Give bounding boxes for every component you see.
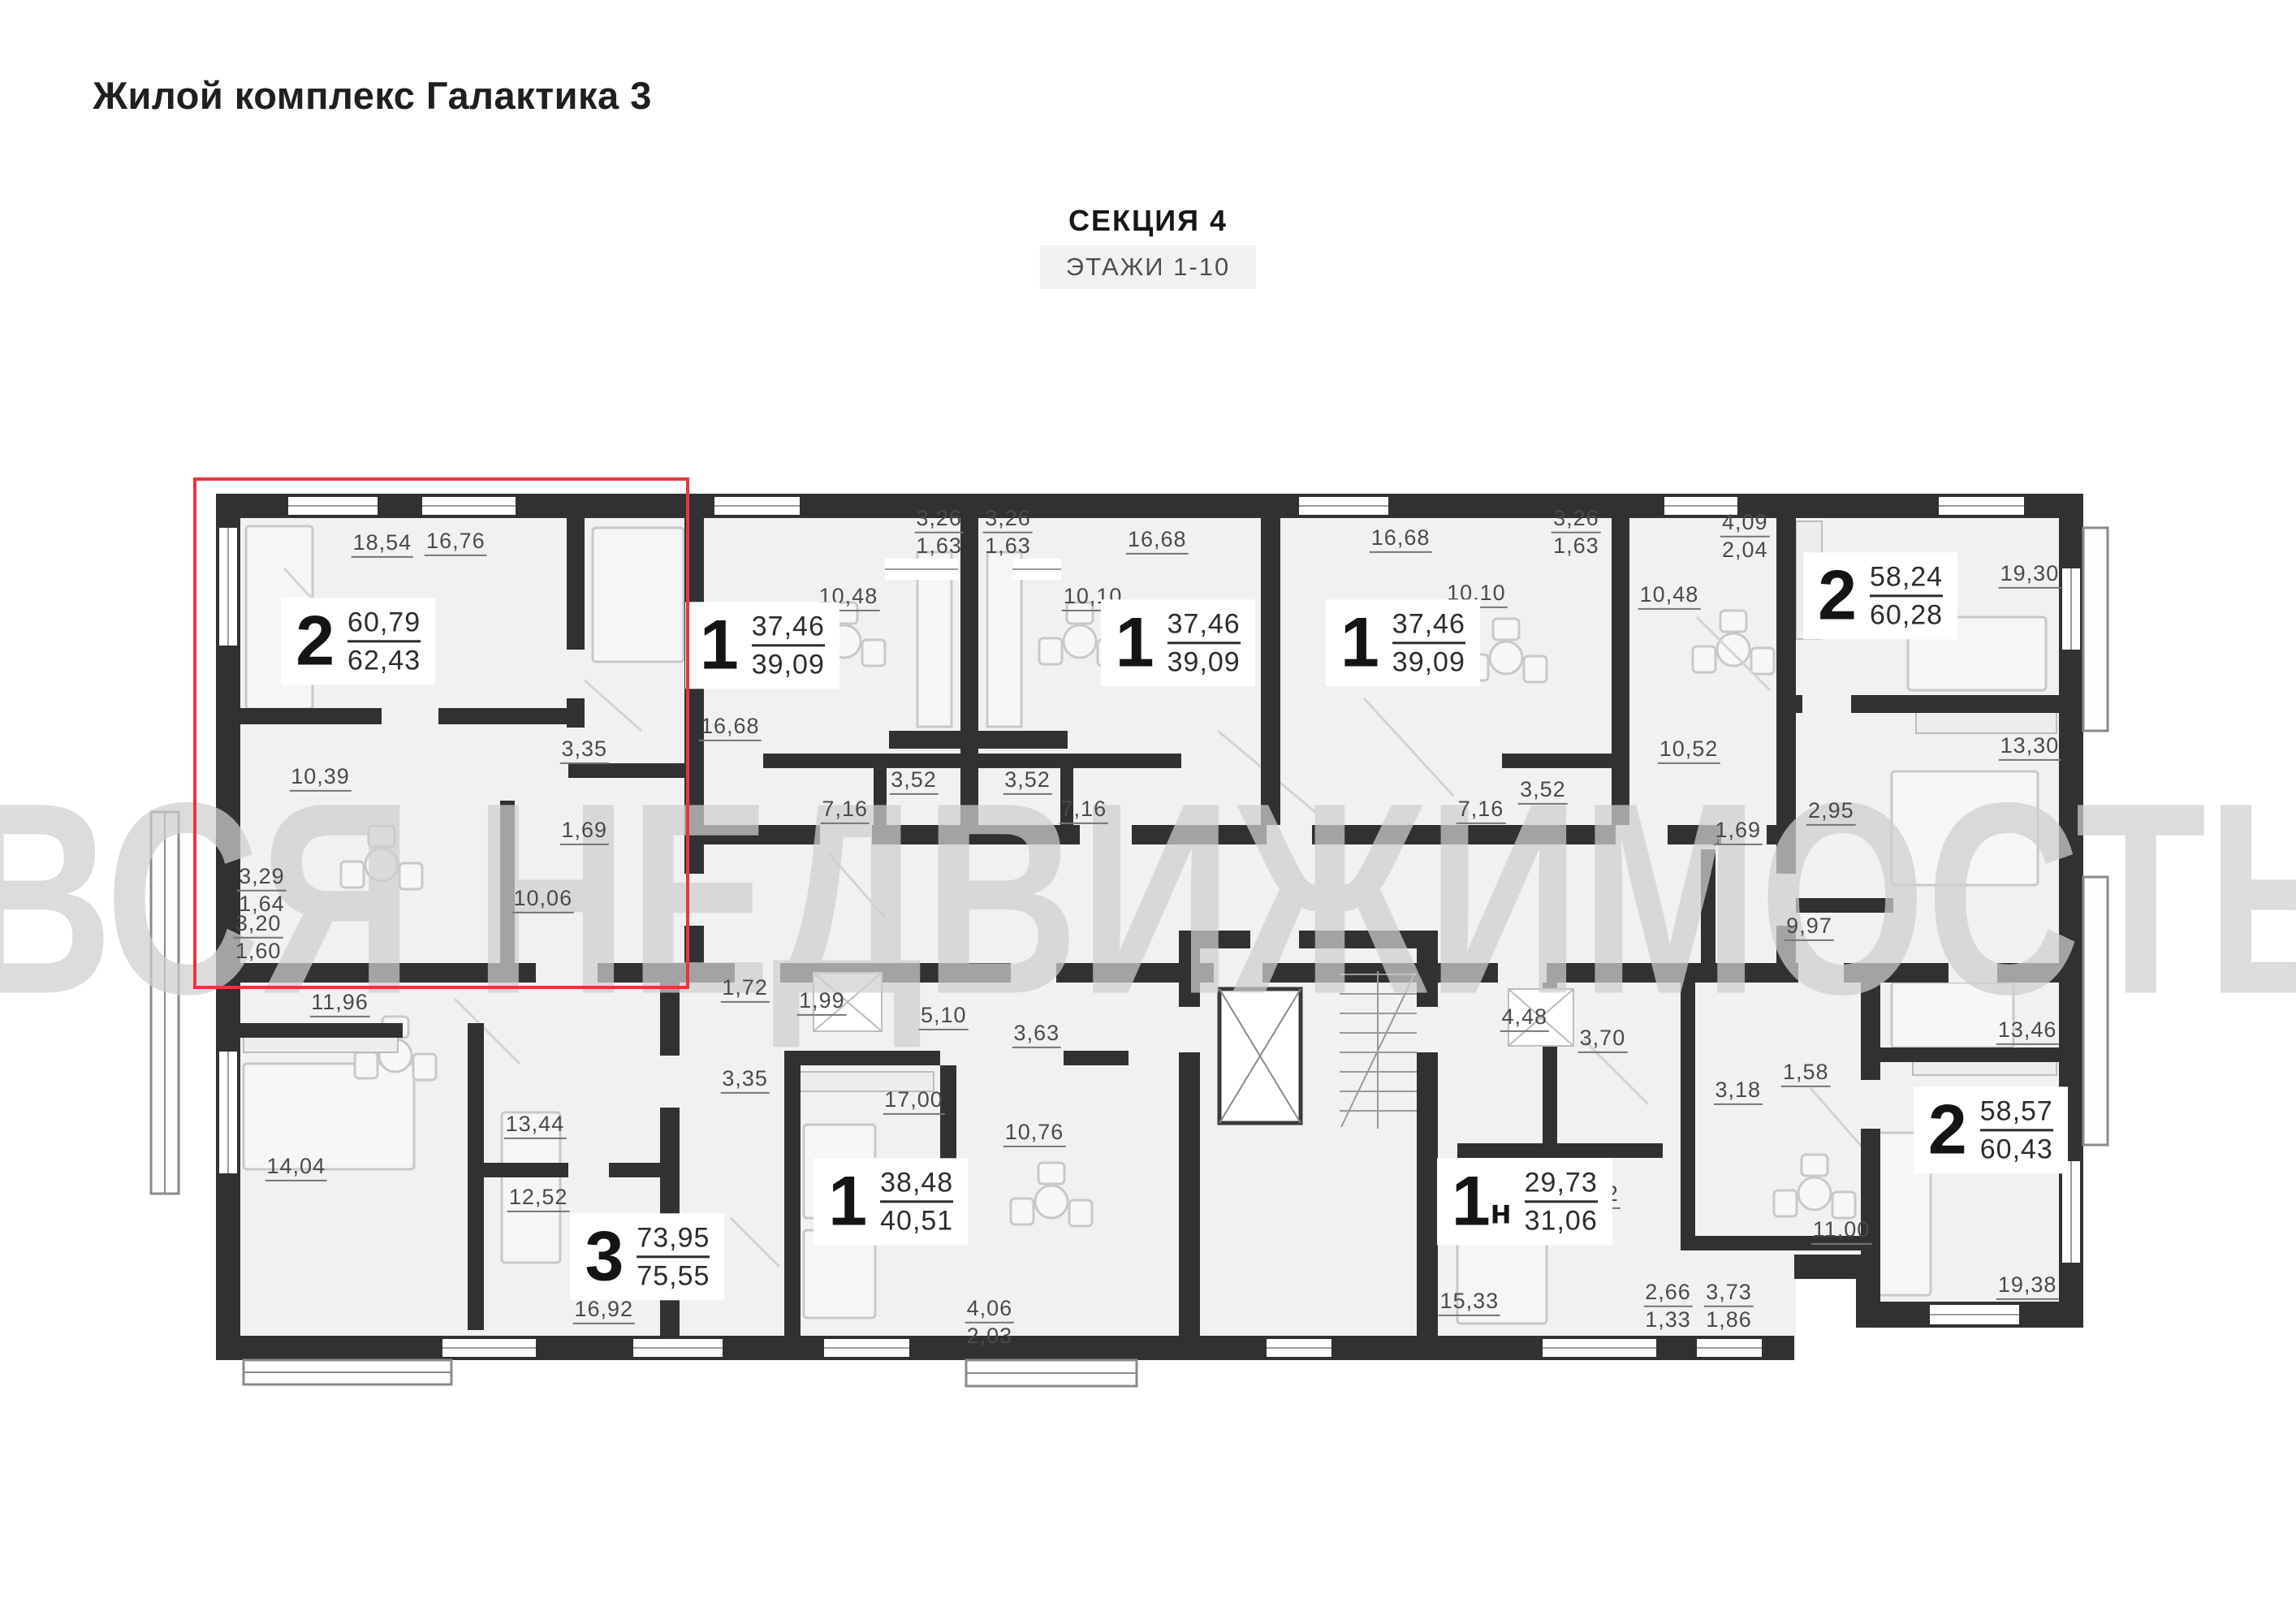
room-area-label: 3,70 <box>1578 1026 1628 1053</box>
apartment-areas: 37,4639,09 <box>752 608 825 682</box>
room-area-label: 11,00 <box>1811 1217 1872 1245</box>
apartment-label[interactable]: 137,4639,09 <box>685 602 839 689</box>
room-area-label: 9,97 <box>1785 914 1834 941</box>
room-area-label: 13,46 <box>1996 1017 2059 1045</box>
room-area-label: 16,68 <box>1126 527 1189 555</box>
room-area-label: 3,63 <box>1012 1021 1062 1048</box>
apartment-label[interactable]: 258,2460,28 <box>1803 552 1957 639</box>
room-area-label: 3,35 <box>720 1066 770 1094</box>
room-area-label: 16,92 <box>572 1297 635 1324</box>
apartment-type: 1 <box>828 1171 867 1233</box>
room-area-label: 19,38 <box>1996 1272 2059 1300</box>
apartment-areas: 38,4840,51 <box>880 1164 953 1238</box>
room-area-label: 10,48 <box>1638 582 1701 610</box>
room-area-label: 7,16 <box>1457 797 1506 824</box>
apartment-label[interactable]: 138,4840,51 <box>814 1158 968 1245</box>
room-area-label: 5,10 <box>919 1003 969 1030</box>
room-area-label: 1,99 <box>797 988 847 1016</box>
apartment-type: 2 <box>1928 1099 1967 1161</box>
apartment-label[interactable]: 373,9575,55 <box>571 1213 725 1300</box>
room-area-label: 3,52 <box>1518 777 1568 805</box>
floorplan-page: Жилой комплекс Галактика 3 СЕКЦИЯ 4 ЭТАЖ… <box>0 0 2296 1624</box>
room-area-label: 16,68 <box>699 714 762 741</box>
apartment-type: 1 <box>700 615 739 676</box>
room-area-label: 1,69 <box>1714 818 1763 845</box>
room-area-label: 4,092,04 <box>1720 510 1770 562</box>
floor-plan: ВСЯ НЕДВИЖИМОСТЬ 260,7962,43137,4639,091… <box>0 0 2296 1624</box>
room-area-label: 2,95 <box>1806 798 1856 826</box>
room-area-label: 7,16 <box>1060 797 1109 824</box>
apartment-label[interactable]: 1н29,7331,06 <box>1437 1158 1612 1245</box>
room-area-label: 11,96 <box>309 990 370 1017</box>
room-area-label: 3,18 <box>1714 1078 1763 1105</box>
room-area-label: 14,04 <box>265 1154 328 1181</box>
room-area-label: 3,261,63 <box>914 506 964 558</box>
room-area-label: 17,00 <box>883 1087 945 1115</box>
apartment-label[interactable]: 137,4639,09 <box>1326 599 1480 686</box>
room-area-label: 10,76 <box>1003 1120 1066 1147</box>
apartment-type: 1н <box>1452 1171 1512 1233</box>
room-area-label: 3,261,63 <box>1552 506 1601 558</box>
apartment-type: 2 <box>1818 565 1857 627</box>
room-area-label: 10,52 <box>1658 736 1720 764</box>
room-area-label: 3,52 <box>1003 767 1052 795</box>
apartment-areas: 58,5760,43 <box>1980 1093 2053 1167</box>
room-area-label: 19,30 <box>1999 561 2061 589</box>
room-area-label: 3,52 <box>889 767 939 795</box>
room-area-label: 3,731,86 <box>1704 1280 1754 1332</box>
apartment-type: 3 <box>585 1226 624 1288</box>
apartment-type: 1 <box>1340 612 1379 674</box>
room-area-label: 3,261,63 <box>983 506 1033 558</box>
room-area-label: 2,661,33 <box>1643 1280 1693 1332</box>
room-area-label: 7,16 <box>820 797 870 824</box>
apartment-areas: 29,7331,06 <box>1525 1164 1598 1238</box>
apartment-areas: 37,4639,09 <box>1392 606 1465 680</box>
room-area-label: 12,52 <box>507 1185 570 1212</box>
room-area-label: 13,44 <box>504 1112 567 1139</box>
apartment-label[interactable]: 137,4639,09 <box>1101 599 1255 686</box>
apartment-areas: 73,9575,55 <box>637 1220 710 1294</box>
selected-apartment-highlight[interactable] <box>193 477 690 989</box>
room-area-label: 4,062,03 <box>965 1296 1015 1348</box>
room-area-label: 1,72 <box>720 975 770 1003</box>
room-area-label: 16,68 <box>1370 525 1432 553</box>
room-area-label: 4,48 <box>1500 1004 1550 1032</box>
room-area-label: 15,33 <box>1439 1289 1501 1316</box>
apartment-type: 1 <box>1116 612 1154 674</box>
elevator-icon <box>1219 989 1301 1123</box>
room-area-label: 1,58 <box>1781 1060 1831 1087</box>
room-area-label: 13,30 <box>1999 733 2061 761</box>
apartment-areas: 37,4639,09 <box>1167 606 1241 680</box>
apartment-areas: 58,2460,28 <box>1870 559 1943 633</box>
apartment-label[interactable]: 258,5760,43 <box>1914 1086 2068 1173</box>
